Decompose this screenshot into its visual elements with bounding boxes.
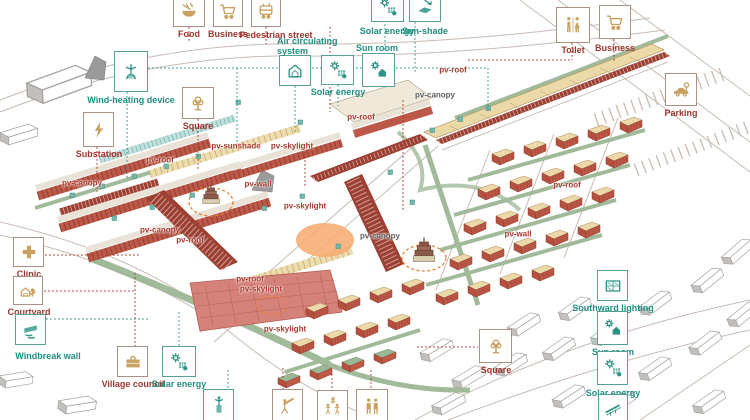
parking-label: Parking (651, 108, 711, 118)
device-bottom-box (203, 389, 234, 420)
solar-energy-top-box (371, 0, 404, 22)
children-bottom-box (317, 390, 348, 420)
sun-shade-label: Sun-shade (394, 26, 456, 36)
window-icon (603, 276, 623, 296)
substation-box (83, 112, 114, 147)
food-box (173, 0, 205, 27)
kids-icon (323, 396, 343, 416)
tilt-panel-icon (415, 0, 435, 17)
solar-energy-bottom-box (162, 346, 196, 377)
square-left-label: Square (168, 121, 228, 131)
square-bottom-box (479, 329, 512, 363)
cross-icon (19, 242, 39, 262)
sun-house-icon (603, 318, 623, 338)
bolt-icon (89, 120, 109, 140)
solar-energy-mid-box (321, 55, 354, 85)
wall-wind-icon (21, 320, 41, 340)
car-icon (671, 80, 691, 100)
site-plan-diagram: FoodBusinessPedestrian streetSolar energ… (0, 0, 750, 420)
elders-icon (362, 396, 382, 416)
gadget-icon (209, 396, 229, 416)
square-bottom-label: Square (466, 365, 526, 375)
bowl-icon (179, 0, 199, 20)
map-label-pv-roof: pv-roof (236, 275, 264, 284)
briefcase-icon (123, 352, 143, 372)
map-label-pv-skylight: pv-skylight (240, 285, 282, 294)
village-council-box (117, 346, 148, 377)
map-label-pv-roof: pv-roof (146, 156, 174, 165)
sun-room-mid-label: Sun room (349, 43, 405, 53)
square-left-box (182, 87, 214, 119)
elderly-bottom-box (356, 389, 388, 420)
wc-icon (563, 15, 583, 35)
windbreak-wall-box (15, 314, 46, 345)
sun-room-mid-box (362, 53, 395, 87)
cart-icon (605, 12, 625, 32)
map-label-pv-roof: pv-roof (553, 181, 581, 190)
cart-icon (218, 1, 238, 21)
turbine-icon (121, 62, 141, 82)
panel-icon (603, 398, 623, 418)
solar-energy-mid-label: Solar energy (303, 87, 373, 97)
wind-heating-device-box (114, 51, 148, 92)
yard-icon (18, 281, 38, 301)
map-label-pv-canopy: pv-canopy (140, 226, 180, 235)
map-label-pv-canopy: pv-canopy (360, 232, 400, 241)
wind-heating-device-label: Wind-heating device (73, 95, 189, 105)
air-circulating-system-box (279, 55, 311, 86)
tree-icon (188, 93, 208, 113)
sun-house-icon (369, 60, 389, 80)
substation-label: Substation (68, 149, 130, 159)
parking-box (665, 73, 697, 106)
house-air-icon (285, 61, 305, 81)
solar-energy-right-box (597, 351, 628, 385)
business-top-box (213, 0, 243, 27)
map-label-pv-skylight: pv-skylight (264, 325, 306, 334)
map-label-pv-roof: pv-roof (176, 236, 204, 245)
business-right-label: Business (585, 43, 645, 53)
clinic-box (13, 237, 44, 267)
map-label-pv-wall: pv-wall (504, 230, 531, 239)
map-label-pv-wall: pv-wall (244, 180, 271, 189)
sun-panel-icon (378, 0, 398, 17)
map-label-pv-skylight: pv-skylight (284, 202, 326, 211)
rooftop-units (70, 100, 491, 249)
business-right-box (599, 5, 631, 39)
map-label-pv-canopy: pv-canopy (415, 91, 455, 100)
sun-panel-icon (603, 358, 623, 378)
sun-shade-box (409, 0, 441, 22)
map-label-pv-sunshade: pv-sunshade (211, 142, 260, 151)
tram-icon (256, 1, 276, 21)
windbreak-wall-label: Windbreak wall (0, 351, 96, 361)
stargazing-bottom-box (272, 389, 303, 420)
solar-panel-right-box (598, 394, 628, 420)
courtyard-box (13, 276, 43, 305)
toilet-box (556, 7, 590, 43)
pedestrian-street-box (251, 0, 281, 27)
sun-room-right-box (597, 311, 628, 345)
map-label-pv-skylight: pv-skylight (271, 142, 313, 151)
tree-icon (486, 336, 506, 356)
map-label-pv-roof: pv-roof (347, 113, 375, 122)
sun-panel-icon (169, 352, 189, 372)
map-label-pv-roof: pv-roof (439, 66, 467, 75)
map-label-pv-canopy: pv-canopy (62, 179, 102, 188)
sun-panel-icon (328, 60, 348, 80)
telescope-icon (278, 396, 298, 416)
southward-lighting-box (597, 270, 628, 301)
solar-energy-bottom-label: Solar energy (145, 379, 213, 389)
